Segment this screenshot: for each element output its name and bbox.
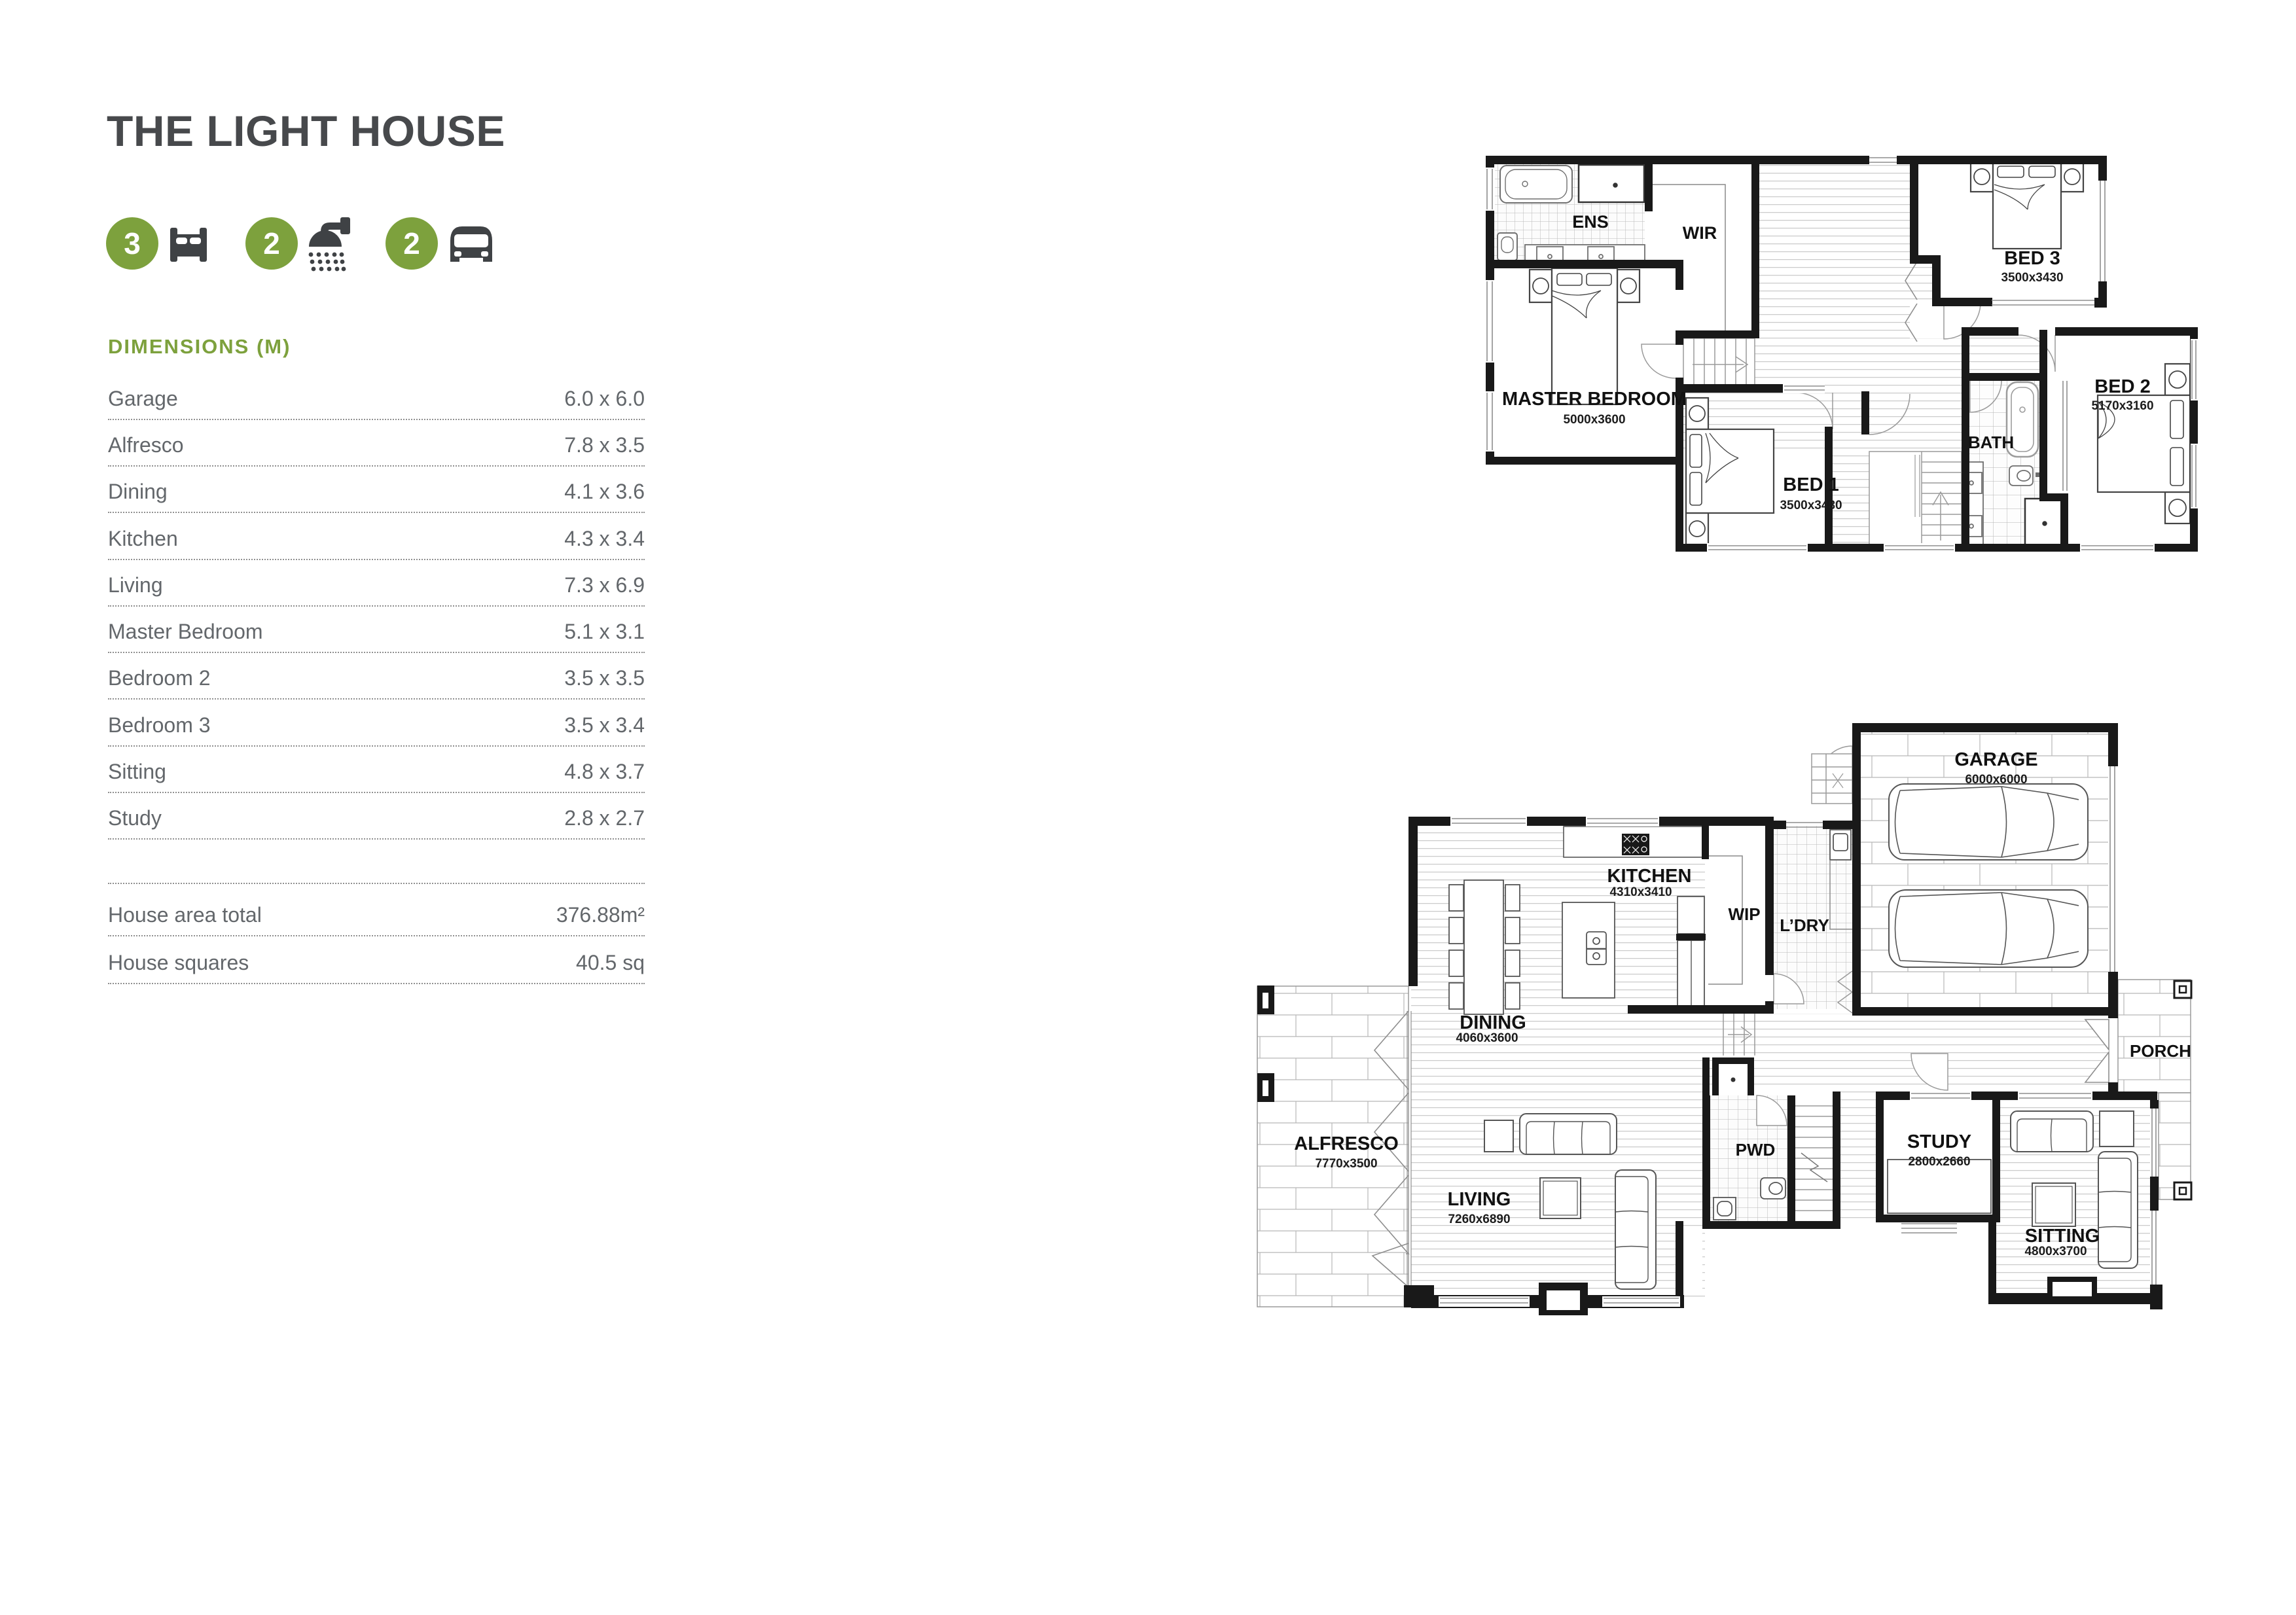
svg-text:6000x6000: 6000x6000 xyxy=(1965,773,2027,787)
svg-text:BED 2: BED 2 xyxy=(2094,376,2150,397)
svg-text:STUDY: STUDY xyxy=(1907,1131,1971,1152)
svg-text:SITTING: SITTING xyxy=(2025,1226,2100,1247)
svg-text:BED 3: BED 3 xyxy=(2004,248,2060,269)
svg-text:ALFRESCO: ALFRESCO xyxy=(1294,1133,1399,1154)
svg-text:3500x3430: 3500x3430 xyxy=(2001,271,2063,285)
svg-text:7770x3500: 7770x3500 xyxy=(1315,1157,1377,1171)
svg-text:BATH: BATH xyxy=(1968,433,2014,452)
svg-text:5000x3600: 5000x3600 xyxy=(1563,413,1625,427)
svg-text:GARAGE: GARAGE xyxy=(1954,749,2037,770)
svg-text:4060x3600: 4060x3600 xyxy=(1456,1031,1518,1045)
svg-text:2: 2 xyxy=(403,226,420,260)
svg-text:PWD: PWD xyxy=(1736,1140,1776,1160)
svg-text:DINING: DINING xyxy=(1460,1012,1526,1033)
svg-text:4310x3410: 4310x3410 xyxy=(1609,885,1672,899)
svg-text:2800x2660: 2800x2660 xyxy=(1908,1155,1970,1169)
svg-text:ENS: ENS xyxy=(1572,212,1609,232)
svg-text:PORCH: PORCH xyxy=(2130,1041,2191,1061)
svg-text:KITCHEN: KITCHEN xyxy=(1607,866,1692,887)
svg-text:LIVING: LIVING xyxy=(1448,1189,1511,1210)
svg-text:3500x3480: 3500x3480 xyxy=(1780,499,1842,512)
svg-text:WIR: WIR xyxy=(1683,223,1717,243)
svg-text:4800x3700: 4800x3700 xyxy=(2024,1245,2087,1258)
svg-text:5170x3160: 5170x3160 xyxy=(2091,399,2153,413)
svg-text:7260x6890: 7260x6890 xyxy=(1448,1213,1510,1226)
svg-text:3: 3 xyxy=(124,226,141,260)
svg-text:WIP: WIP xyxy=(1728,904,1760,924)
svg-text:MASTER BEDROOM: MASTER BEDROOM xyxy=(1502,389,1687,410)
svg-text:L’DRY: L’DRY xyxy=(1780,915,1829,935)
svg-text:2: 2 xyxy=(263,226,280,260)
svg-text:BED 1: BED 1 xyxy=(1783,474,1839,495)
